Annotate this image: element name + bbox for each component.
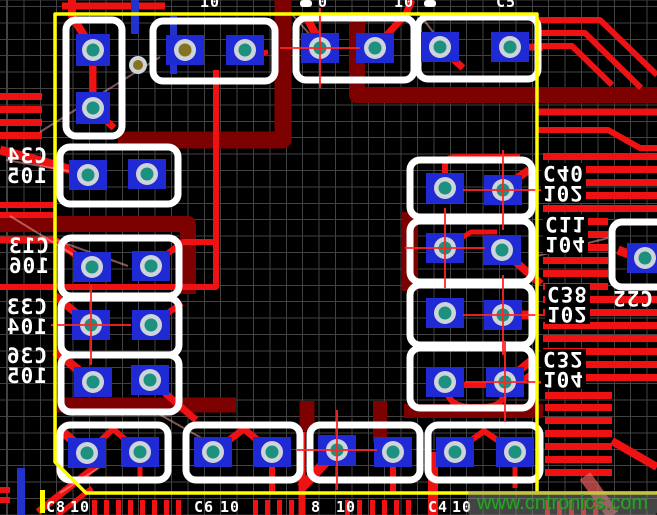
trace-red-bar bbox=[543, 153, 657, 160]
silkscreen-stub bbox=[424, 0, 436, 7]
trace-red-stub bbox=[265, 500, 270, 515]
trace-red-bar bbox=[543, 244, 608, 251]
trace-red-bar bbox=[543, 335, 657, 342]
via-center bbox=[266, 446, 279, 459]
trace-red-stub bbox=[370, 500, 375, 515]
trace-red-bar bbox=[545, 404, 612, 411]
trace-red-bar bbox=[543, 231, 608, 238]
trace-blue bbox=[17, 468, 25, 515]
trace-red-bar bbox=[543, 192, 657, 199]
via-center bbox=[145, 260, 158, 273]
trace-red-bar bbox=[543, 296, 657, 303]
via-center bbox=[504, 41, 517, 54]
trace-red-bar bbox=[0, 202, 55, 208]
trace-red-stub bbox=[289, 500, 294, 515]
via-center bbox=[207, 446, 220, 459]
via-center bbox=[141, 168, 154, 181]
trace-red-bar bbox=[0, 106, 42, 113]
trace-red-bar bbox=[543, 205, 657, 212]
trace-red-bar bbox=[543, 374, 657, 381]
via-center bbox=[387, 446, 400, 459]
via-center bbox=[369, 42, 382, 55]
via-center bbox=[87, 102, 100, 115]
via-center bbox=[133, 60, 143, 70]
trace-red-bar bbox=[543, 361, 657, 368]
trace-blue bbox=[131, 0, 139, 34]
via-center bbox=[239, 44, 252, 57]
via-center bbox=[434, 41, 447, 54]
trace-red-bar bbox=[545, 456, 612, 463]
via-center bbox=[439, 182, 452, 195]
trace-red-stub bbox=[140, 500, 145, 515]
trace-red-bar bbox=[543, 348, 657, 355]
trace-red-bar bbox=[545, 430, 612, 437]
trace-red-bar bbox=[543, 309, 657, 316]
trace-red-stub bbox=[253, 500, 258, 515]
trace-red-bar bbox=[0, 93, 42, 100]
trace-red-bar bbox=[543, 257, 608, 264]
trace-red-bar bbox=[545, 443, 612, 450]
trace-red-bar bbox=[543, 218, 608, 225]
via-center bbox=[86, 261, 99, 274]
via-center bbox=[496, 244, 509, 257]
pcb-svg bbox=[0, 0, 657, 515]
trace-red-stub bbox=[104, 500, 109, 515]
via-center bbox=[439, 307, 452, 320]
via-center bbox=[87, 44, 100, 57]
via-center bbox=[639, 252, 652, 265]
trace-red-bar bbox=[543, 322, 657, 329]
trace-red-stub bbox=[277, 500, 282, 515]
via-center bbox=[449, 446, 462, 459]
via-center bbox=[144, 374, 157, 387]
trace-red-stub bbox=[406, 500, 411, 515]
via-center bbox=[509, 446, 522, 459]
trace-red-stub bbox=[394, 500, 399, 515]
pcb-screenshot: C34105C13106C33104C36105C40102C11104C381… bbox=[0, 0, 657, 515]
trace-red bbox=[537, 130, 657, 148]
silkscreen-stub bbox=[300, 0, 312, 7]
trace-red bbox=[612, 441, 657, 467]
trace-red-stub bbox=[382, 500, 387, 515]
via-center bbox=[439, 376, 452, 389]
trace-red-bar bbox=[543, 179, 657, 186]
trace-red-stub bbox=[176, 500, 181, 515]
trace-red-bar bbox=[543, 270, 608, 277]
watermark: www.cntronics.com bbox=[468, 491, 657, 515]
trace-red-bar bbox=[545, 469, 612, 476]
via-center bbox=[82, 169, 95, 182]
trace-red-bar bbox=[0, 212, 55, 218]
trace-red-stub bbox=[345, 500, 350, 515]
trace-red-bar bbox=[543, 283, 608, 290]
via-center bbox=[179, 44, 192, 57]
trace-red-stub bbox=[357, 500, 362, 515]
trace-red-bar bbox=[545, 392, 612, 399]
trace-red-bar bbox=[0, 497, 10, 503]
trace-red-bar bbox=[0, 132, 42, 139]
trace-red-stub bbox=[164, 500, 169, 515]
trace-red-stub bbox=[152, 500, 157, 515]
trace-red-stub bbox=[92, 500, 97, 515]
trace-red-bar bbox=[545, 417, 612, 424]
via-center bbox=[134, 446, 147, 459]
via-center bbox=[145, 319, 158, 332]
trace-red-bar bbox=[0, 119, 42, 126]
trace-red-stub bbox=[116, 500, 121, 515]
courtyard-outline bbox=[55, 14, 537, 493]
trace-red-bar bbox=[0, 487, 10, 493]
trace-red-stub bbox=[128, 500, 133, 515]
via-center bbox=[87, 376, 100, 389]
trace-red-bar bbox=[543, 166, 657, 173]
via-center bbox=[81, 447, 94, 460]
courtyard-dash bbox=[40, 490, 45, 513]
